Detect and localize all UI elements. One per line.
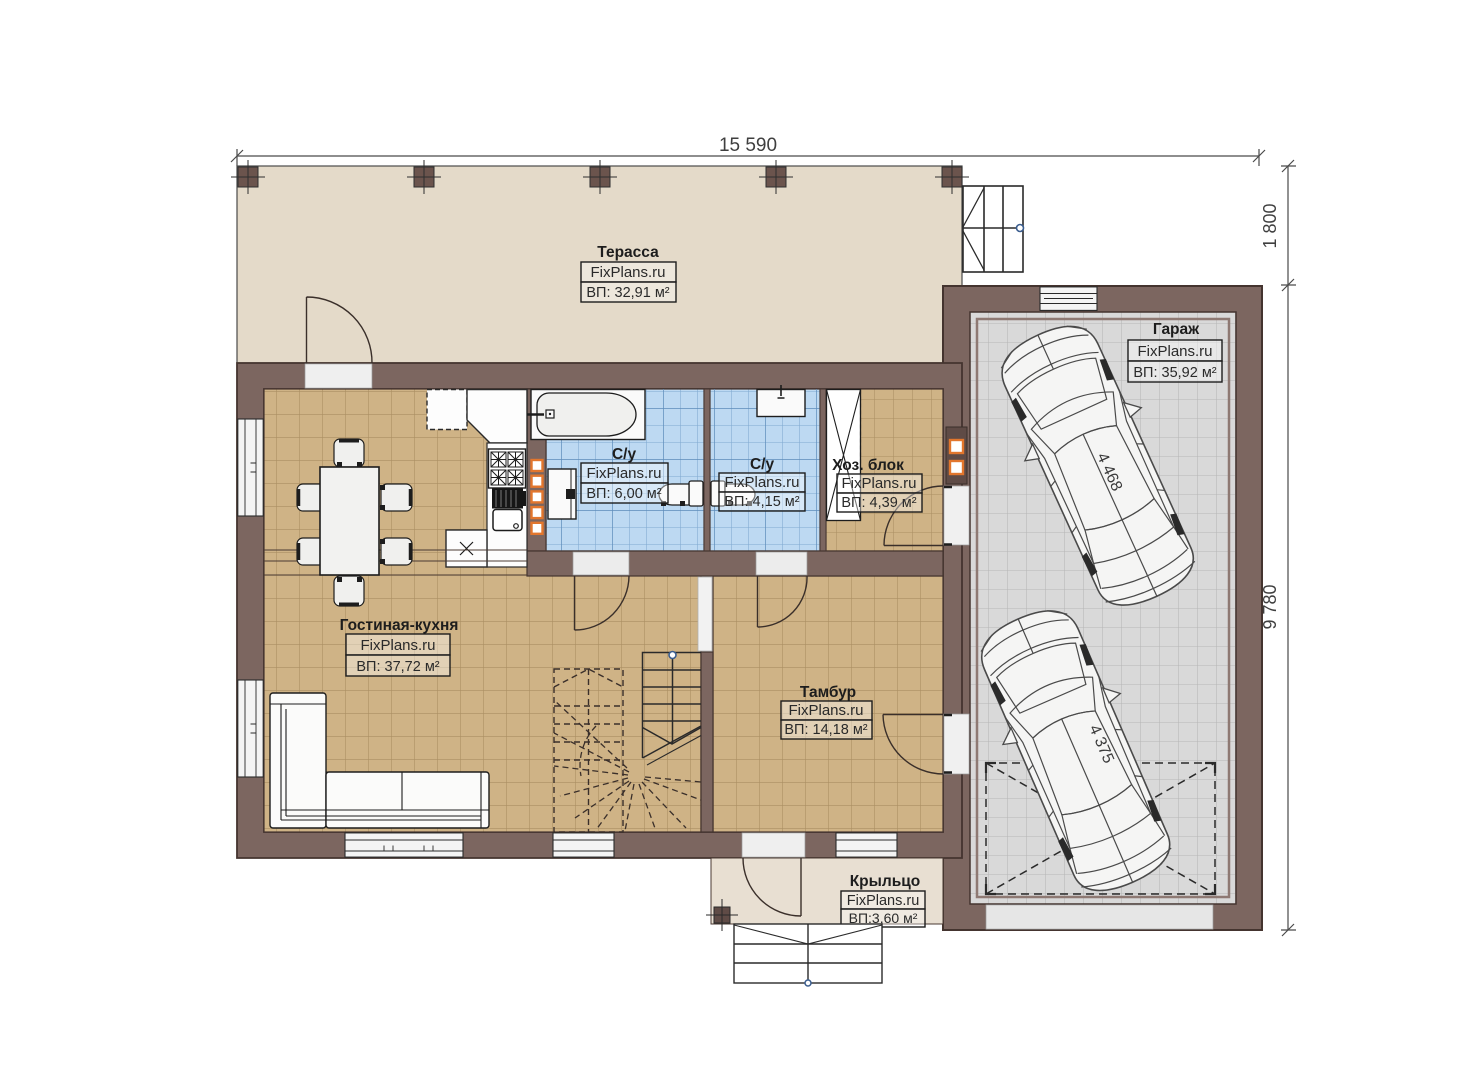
svg-text:С/у: С/у (612, 446, 637, 463)
svg-text:FixPlans.ru: FixPlans.ru (847, 893, 920, 909)
svg-text:1 800: 1 800 (1260, 203, 1280, 248)
svg-text:FixPlans.ru: FixPlans.ru (590, 264, 665, 281)
svg-text:ВП: 14,18 м²: ВП: 14,18 м² (784, 722, 867, 738)
svg-text:Терасса: Терасса (597, 244, 659, 261)
svg-text:FixPlans.ru: FixPlans.ru (360, 637, 435, 654)
svg-text:Тамбур: Тамбур (800, 684, 856, 701)
svg-text:ВП: 37,72 м²: ВП: 37,72 м² (356, 659, 439, 675)
svg-text:FixPlans.ru: FixPlans.ru (1137, 343, 1212, 360)
svg-text:Крыльцо: Крыльцо (850, 873, 921, 890)
svg-text:Гостиная-кухня: Гостиная-кухня (340, 617, 459, 634)
svg-text:ВП: 35,92 м²: ВП: 35,92 м² (1133, 365, 1216, 381)
svg-text:Гараж: Гараж (1153, 321, 1200, 338)
svg-text:Хоз. блок: Хоз. блок (832, 457, 904, 474)
svg-text:ВП: 6,00 м²: ВП: 6,00 м² (586, 486, 661, 502)
svg-text:15 590: 15 590 (719, 135, 777, 156)
svg-text:FixPlans.ru: FixPlans.ru (841, 475, 916, 492)
svg-text:9 780: 9 780 (1260, 584, 1280, 629)
svg-text:С/у: С/у (750, 456, 775, 473)
svg-text:FixPlans.ru: FixPlans.ru (788, 702, 863, 719)
svg-text:ВП: 32,91 м²: ВП: 32,91 м² (586, 285, 669, 301)
svg-text:FixPlans.ru: FixPlans.ru (586, 465, 661, 482)
svg-text:ВП: 4,15 м²: ВП: 4,15 м² (724, 494, 799, 510)
svg-text:FixPlans.ru: FixPlans.ru (724, 474, 799, 491)
svg-text:ВП: 4,39 м²: ВП: 4,39 м² (841, 495, 916, 511)
